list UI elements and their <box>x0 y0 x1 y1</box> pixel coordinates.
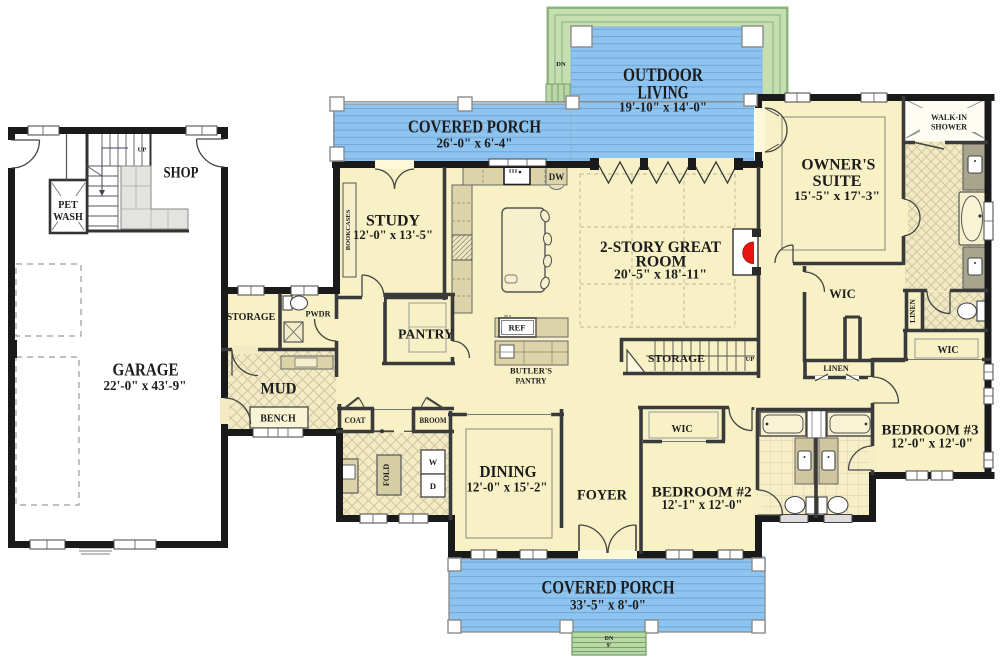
svg-text:BENCH: BENCH <box>260 414 296 425</box>
svg-text:WALK-IN: WALK-IN <box>931 113 967 122</box>
svg-text:WASH: WASH <box>53 212 83 223</box>
svg-text:12'-1" x 12'-0": 12'-1" x 12'-0" <box>662 497 743 512</box>
svg-text:STORAGE: STORAGE <box>227 312 276 323</box>
svg-text:DINING: DINING <box>480 462 537 481</box>
svg-text:GARAGE: GARAGE <box>113 360 179 380</box>
svg-text:WIC: WIC <box>937 345 958 356</box>
svg-text:PWDR: PWDR <box>306 309 332 319</box>
svg-text:PANTRY: PANTRY <box>516 376 547 386</box>
svg-text:UP: UP <box>138 147 147 154</box>
svg-text:W: W <box>429 457 438 467</box>
svg-text:REF: REF <box>509 323 526 333</box>
svg-text:LINEN: LINEN <box>823 364 849 373</box>
svg-text:DN: DN <box>556 61 566 68</box>
svg-text:PANTRY: PANTRY <box>398 327 454 342</box>
svg-text:20'-5" x 18'-11": 20'-5" x 18'-11" <box>614 267 707 282</box>
svg-text:22'-0" x 43'-9": 22'-0" x 43'-9" <box>104 378 187 393</box>
svg-text:9': 9' <box>607 643 612 649</box>
svg-text:OWNER'S: OWNER'S <box>801 157 875 174</box>
svg-text:12'-0" x 12'-0": 12'-0" x 12'-0" <box>891 436 973 451</box>
svg-text:DN: DN <box>605 636 614 642</box>
svg-text:BOOKCASES: BOOKCASES <box>345 209 352 250</box>
svg-text:LINEN: LINEN <box>908 299 917 323</box>
svg-text:33'-5" x 8'-0": 33'-5" x 8'-0" <box>570 598 646 614</box>
svg-text:SHOWER: SHOWER <box>931 123 967 132</box>
svg-text:19'-10" x 14'-0": 19'-10" x 14'-0" <box>619 100 707 115</box>
svg-text:COAT: COAT <box>345 415 366 425</box>
svg-text:BUTLER'S: BUTLER'S <box>510 366 552 376</box>
svg-text:12'-0" x 13'-5": 12'-0" x 13'-5" <box>353 227 433 242</box>
svg-text:COVERED PORCH: COVERED PORCH <box>408 117 541 137</box>
svg-text:STORAGE: STORAGE <box>648 354 705 365</box>
svg-text:FOYER: FOYER <box>577 488 627 504</box>
svg-text:15'-5" x 17'-3": 15'-5" x 17'-3" <box>794 188 880 203</box>
svg-text:DW: DW <box>549 172 565 182</box>
svg-text:PET: PET <box>58 200 78 211</box>
svg-text:26'-0" x 6'-4": 26'-0" x 6'-4" <box>437 136 513 151</box>
svg-text:SHOP: SHOP <box>164 165 199 182</box>
svg-text:COVERED PORCH: COVERED PORCH <box>542 579 675 599</box>
svg-text:WIC: WIC <box>671 424 692 435</box>
svg-text:FOLD: FOLD <box>382 464 391 486</box>
svg-text:D: D <box>430 481 436 491</box>
svg-text:MUD: MUD <box>261 381 297 398</box>
svg-text:BROOM: BROOM <box>420 415 447 425</box>
svg-text:12'-0" x 15'-2": 12'-0" x 15'-2" <box>467 480 548 495</box>
svg-text:WIC: WIC <box>829 287 855 301</box>
svg-text:UP: UP <box>746 356 755 363</box>
